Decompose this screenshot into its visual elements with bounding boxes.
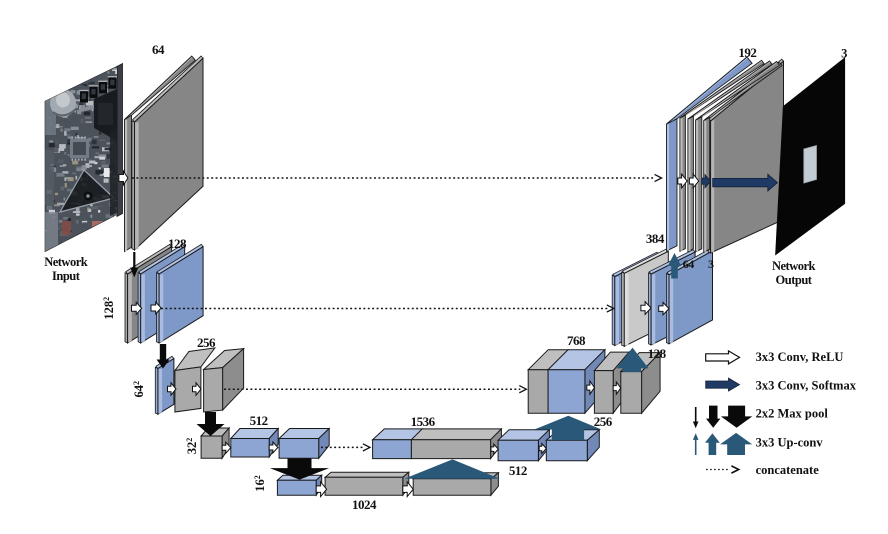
svg-text:384: 384 [646,231,665,246]
svg-text:256: 256 [197,335,216,350]
svg-text:3x3 Conv, Softmax: 3x3 Conv, Softmax [756,379,857,393]
svg-text:64: 64 [683,257,695,271]
svg-text:2x2 Max pool: 2x2 Max pool [756,407,829,421]
svg-text:128: 128 [168,236,187,251]
svg-text:concatenate: concatenate [756,463,820,477]
svg-text:Output: Output [776,273,813,287]
svg-text:3: 3 [708,257,714,271]
svg-text:Network: Network [772,259,816,273]
svg-text:512: 512 [250,413,268,428]
svg-text:1024: 1024 [352,497,377,512]
svg-text:768: 768 [567,333,586,348]
svg-text:Input: Input [52,269,81,283]
svg-text:3: 3 [841,47,847,61]
svg-text:512: 512 [509,463,527,478]
svg-text:128: 128 [648,346,667,361]
svg-text:64: 64 [152,42,165,57]
svg-text:256: 256 [594,414,613,429]
svg-text:Network: Network [44,255,88,269]
svg-text:3x3 Up-conv: 3x3 Up-conv [756,436,824,450]
svg-text:3x3 Conv, ReLU: 3x3 Conv, ReLU [756,350,844,364]
svg-text:1536: 1536 [411,414,436,429]
svg-text:192: 192 [738,45,756,60]
